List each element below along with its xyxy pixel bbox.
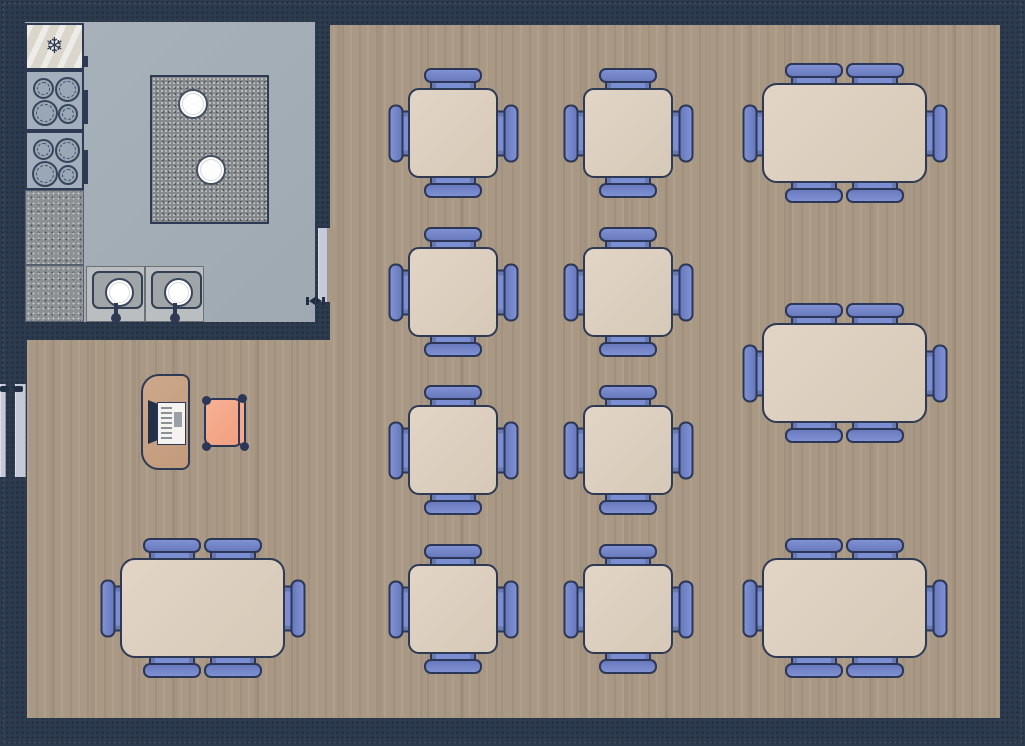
kitchen-counter[interactable] (25, 190, 84, 265)
faucet-icon (164, 278, 193, 307)
chair-back (143, 538, 201, 553)
chair-back (424, 68, 482, 83)
chair-back (503, 421, 518, 479)
chair-post-icon (240, 442, 249, 451)
cash-register[interactable] (148, 399, 186, 445)
chair-back (599, 342, 657, 357)
chair-back (932, 579, 947, 637)
chair-back (785, 663, 843, 678)
chair-back (846, 538, 904, 553)
burner-icon (58, 104, 78, 124)
kitchen-sink[interactable] (145, 266, 204, 322)
chair-back (204, 663, 262, 678)
burner-icon (32, 161, 58, 187)
chair-back (503, 580, 518, 638)
chair-back (742, 579, 757, 637)
kitchen-doorway-threshold (328, 228, 335, 302)
register-body (157, 402, 186, 445)
table-for-4[interactable] (583, 564, 673, 654)
chair-back (599, 68, 657, 83)
chair-back (388, 421, 403, 479)
chair-back (388, 580, 403, 638)
chair-back (678, 580, 693, 638)
table-for-6[interactable] (762, 558, 927, 658)
chair-back (846, 663, 904, 678)
entry-door-leaf[interactable] (0, 384, 6, 477)
chair-back (846, 303, 904, 318)
stove-top[interactable] (25, 70, 84, 131)
chair-back (563, 104, 578, 162)
chair-back (503, 104, 518, 162)
chair-back (846, 188, 904, 203)
door-handle-icon (0, 386, 9, 392)
chair-back (742, 344, 757, 402)
chair-back (563, 580, 578, 638)
kitchen-sink[interactable] (86, 266, 145, 322)
burner-icon (33, 78, 54, 99)
chair-back (204, 538, 262, 553)
chair-back (388, 263, 403, 321)
kitchen-door-leaf[interactable] (318, 228, 328, 302)
burner-icon (58, 165, 78, 185)
faucet-knob (111, 313, 121, 323)
table-for-6[interactable] (762, 83, 927, 183)
table-for-4[interactable] (583, 88, 673, 178)
chair-back (932, 344, 947, 402)
chair-back (846, 428, 904, 443)
chair-back (742, 104, 757, 162)
refrigerator-handle (84, 56, 88, 67)
table-for-4[interactable] (583, 405, 673, 495)
chair-post-icon (238, 394, 247, 403)
chair-back (424, 659, 482, 674)
chair-back (599, 500, 657, 515)
table-for-4[interactable] (408, 247, 498, 337)
chair-post-icon (202, 442, 211, 451)
kitchen-island[interactable] (150, 75, 269, 224)
chair-back (785, 63, 843, 78)
chair-back (290, 579, 305, 637)
snowflake-icon: ❄ (45, 36, 63, 58)
chair-back (424, 544, 482, 559)
chair-back (599, 227, 657, 242)
chair-back (599, 385, 657, 400)
chair-back (785, 428, 843, 443)
chair-back (143, 663, 201, 678)
stove-top[interactable] (25, 131, 84, 190)
chair-back (678, 104, 693, 162)
stool[interactable] (196, 155, 226, 185)
chair-back (424, 342, 482, 357)
chair-back (678, 263, 693, 321)
chair-back (599, 659, 657, 674)
burner-icon (55, 77, 80, 102)
chair-back (599, 183, 657, 198)
chair-back (678, 421, 693, 479)
stool[interactable] (178, 89, 208, 119)
entry-door-leaf[interactable] (15, 384, 26, 477)
chair-back (785, 303, 843, 318)
chair-back (846, 63, 904, 78)
burner-icon (55, 138, 80, 163)
faucet-icon (105, 278, 134, 307)
chair-back (424, 500, 482, 515)
chair-back (424, 385, 482, 400)
stove-handle (84, 150, 88, 184)
floor-plan-canvas: ❄ (0, 0, 1025, 746)
door-pivot-icon (306, 295, 325, 307)
table-for-4[interactable] (408, 564, 498, 654)
door-handle-icon (14, 386, 23, 392)
table-for-4[interactable] (583, 247, 673, 337)
chair-back (424, 227, 482, 242)
table-for-6[interactable] (762, 323, 927, 423)
host-chair-back (238, 399, 246, 446)
chair-back (563, 263, 578, 321)
table-for-4[interactable] (408, 88, 498, 178)
chair-back (785, 188, 843, 203)
table-for-4[interactable] (408, 405, 498, 495)
chair-back (932, 104, 947, 162)
register-display (174, 412, 182, 427)
burner-icon (32, 100, 58, 126)
faucet-knob (170, 313, 180, 323)
refrigerator[interactable]: ❄ (25, 23, 84, 70)
chair-back (599, 544, 657, 559)
table-for-6[interactable] (120, 558, 285, 658)
chair-back (503, 263, 518, 321)
burner-icon (33, 139, 54, 160)
chair-back (424, 183, 482, 198)
stove-handle (84, 90, 88, 124)
chair-back (388, 104, 403, 162)
chair-back (563, 421, 578, 479)
chair-back (100, 579, 115, 637)
kitchen-counter[interactable] (25, 265, 84, 322)
chair-post-icon (202, 396, 211, 405)
register-keypad (161, 407, 172, 439)
chair-back (785, 538, 843, 553)
